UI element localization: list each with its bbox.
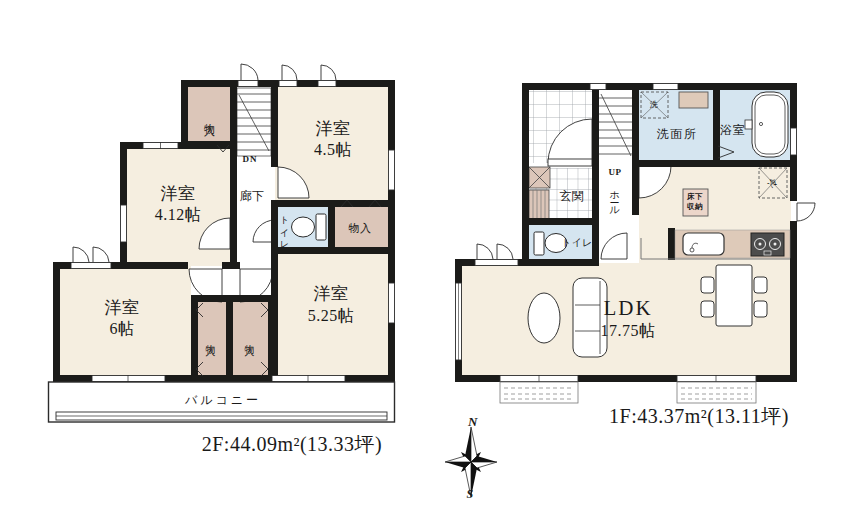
sink-icon: [683, 233, 724, 255]
staircase-down-icon: [237, 88, 271, 156]
area-label-1f: 1F:43.37m²(13.11坪): [609, 406, 789, 426]
label-washroom: 洗面所: [657, 128, 698, 140]
floorplan-1f: [455, 83, 815, 403]
label-closet-b2: 物入: [244, 336, 254, 340]
door-exterior-right: [797, 203, 815, 221]
room-label-yoshitsu6-name: 洋室: [105, 299, 140, 316]
label-hall: ホール: [609, 184, 619, 213]
stove-icon: [751, 233, 784, 256]
coffee-table-icon: [528, 293, 560, 343]
label-washer: 洗: [650, 101, 659, 109]
room-label-yoshitsu525-size: 5.25帖: [308, 308, 355, 324]
label-hallway: 廊下: [240, 190, 265, 202]
label-underfloor-2: 収納: [687, 203, 703, 211]
room-label-yoshitsu6-size: 6帖: [110, 321, 135, 337]
staircase-up-icon: [599, 94, 632, 156]
room-label-yoshitsu525-name: 洋室: [314, 285, 349, 302]
entrance-door-leaf: [548, 159, 592, 166]
room-ldk: [639, 165, 791, 377]
label-stairs-dn: DN: [243, 155, 258, 164]
floorplan-graphic: [0, 0, 852, 529]
room-label-yoshitsu45-name: 洋室: [316, 120, 351, 137]
shoe-cabinet-icon: [529, 167, 550, 223]
label-toilet-1f: トイレ: [561, 238, 593, 248]
compass-north-label: N: [468, 415, 478, 428]
label-closet-b1: 物入: [205, 336, 215, 340]
sofa-icon: [573, 278, 607, 357]
label-closet-mid: 物入: [349, 223, 372, 234]
label-stairs-up: UP: [609, 168, 622, 177]
area-label-2f: 2F:44.09m²(13.33坪): [202, 434, 383, 454]
room-label-ldk-size: 17.75帖: [601, 323, 656, 339]
label-bath: 浴室: [720, 124, 746, 136]
compass-south-label: S: [466, 488, 473, 500]
floorplan-page: 物入 洋室 4.5帖 DN 廊下 トイレ 物入 洋室 4.12帖 洋室 6帖 洋…: [0, 0, 852, 529]
room-label-yoshitsu412-size: 4.12帖: [155, 207, 202, 223]
room-label-yoshitsu412-name: 洋室: [161, 185, 196, 202]
label-underfloor-1: 床下: [687, 193, 703, 201]
room-label-ldk-name: LDK: [603, 298, 652, 319]
label-genkan: 玄関: [560, 190, 585, 202]
label-toilet-2f: トイレ: [280, 210, 289, 247]
door-toilet-1f: [601, 233, 627, 259]
label-closet-top: 物入: [204, 114, 215, 118]
vanity-counter-icon: [679, 92, 708, 108]
terrace-steps: [500, 382, 756, 403]
room-label-yoshitsu45-size: 4.5帖: [314, 142, 352, 158]
label-balcony: バルコニー: [185, 394, 261, 406]
